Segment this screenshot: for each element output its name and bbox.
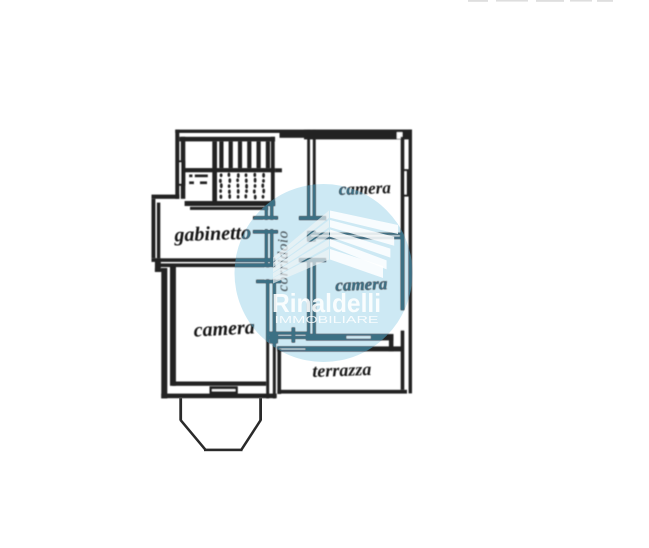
svg-text:camera: camera [193, 316, 255, 341]
svg-text:Rinaldelli: Rinaldelli [272, 288, 381, 318]
svg-text:gabinetto: gabinetto [173, 222, 251, 247]
svg-text:IMMOBILIARE: IMMOBILIARE [275, 315, 380, 326]
svg-text:terrazza: terrazza [312, 359, 372, 381]
